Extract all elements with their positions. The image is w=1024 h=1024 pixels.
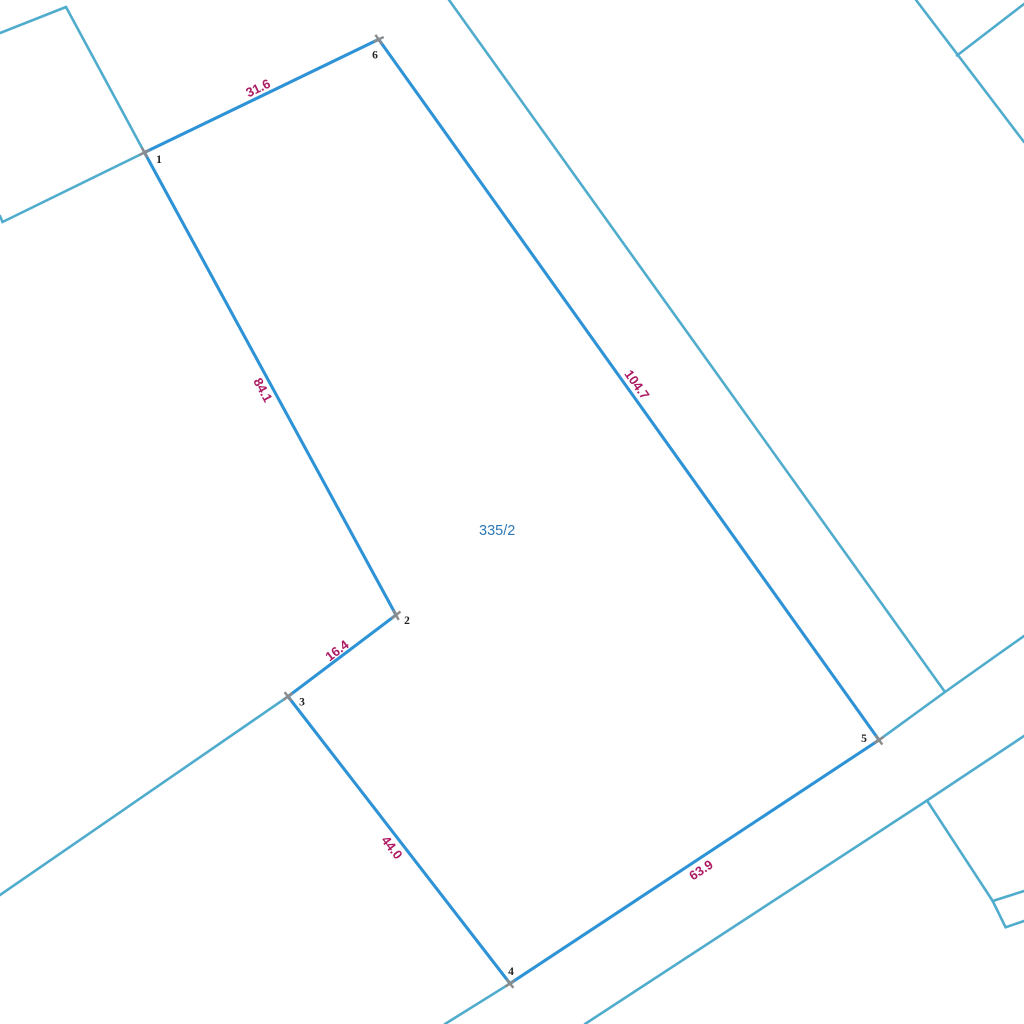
svg-text:1: 1: [156, 154, 162, 166]
svg-text:335/2: 335/2: [479, 523, 515, 539]
svg-text:2: 2: [404, 615, 410, 627]
svg-text:4: 4: [508, 966, 514, 978]
svg-text:3: 3: [299, 697, 305, 709]
svg-text:6: 6: [372, 50, 378, 62]
svg-text:5: 5: [861, 733, 867, 745]
